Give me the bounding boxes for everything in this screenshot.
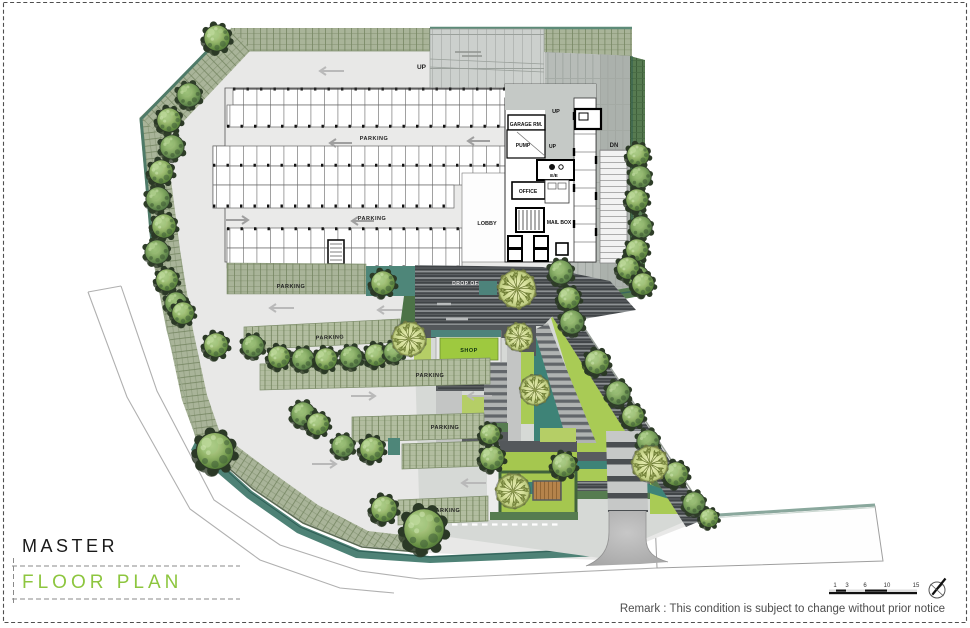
svg-text:MASTER: MASTER [22,536,118,556]
svg-text:GARAGE RM.: GARAGE RM. [510,122,543,128]
svg-text:UP: UP [549,144,557,150]
svg-text:PUMP: PUMP [516,143,531,149]
svg-text:10: 10 [884,583,891,589]
svg-text:PARKING: PARKING [360,136,388,142]
svg-text:PARKING: PARKING [416,373,444,379]
svg-text:DROP OFF: DROP OFF [452,281,482,287]
svg-text:FLOOR PLAN: FLOOR PLAN [22,572,182,593]
svg-text:Remark : This condition is sub: Remark : This condition is subject to ch… [620,603,945,615]
svg-text:E/E: E/E [550,173,559,179]
svg-text:OFFICE: OFFICE [519,189,538,195]
svg-text:UP: UP [417,64,427,71]
svg-text:PARKING: PARKING [277,284,305,290]
svg-text:SHOP: SHOP [460,348,478,354]
svg-text:LOBBY: LOBBY [477,221,497,227]
svg-text:MAIL BOX: MAIL BOX [547,220,572,226]
svg-text:PARKING: PARKING [316,335,345,342]
svg-text:15: 15 [913,583,920,589]
svg-text:DN: DN [610,143,619,149]
svg-text:UP: UP [552,109,560,115]
svg-text:PARKING: PARKING [431,425,459,431]
